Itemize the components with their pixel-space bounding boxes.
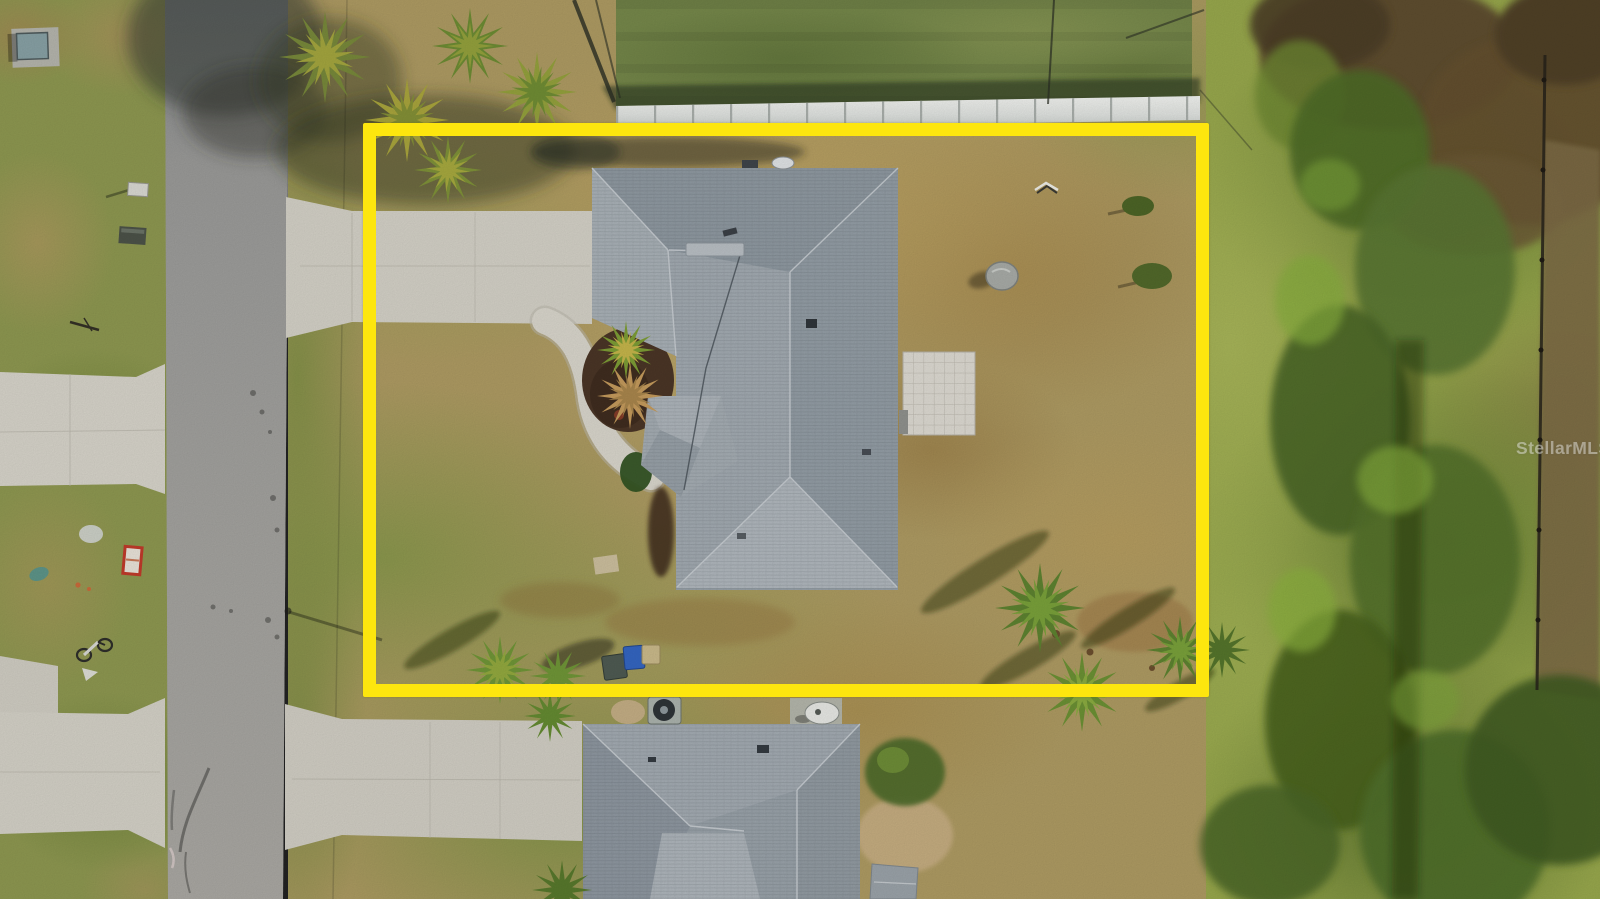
watermark: StellarMLS (1516, 438, 1600, 459)
property-boundary-box (363, 123, 1209, 697)
aerial-property-photo: StellarMLS (0, 0, 1600, 899)
